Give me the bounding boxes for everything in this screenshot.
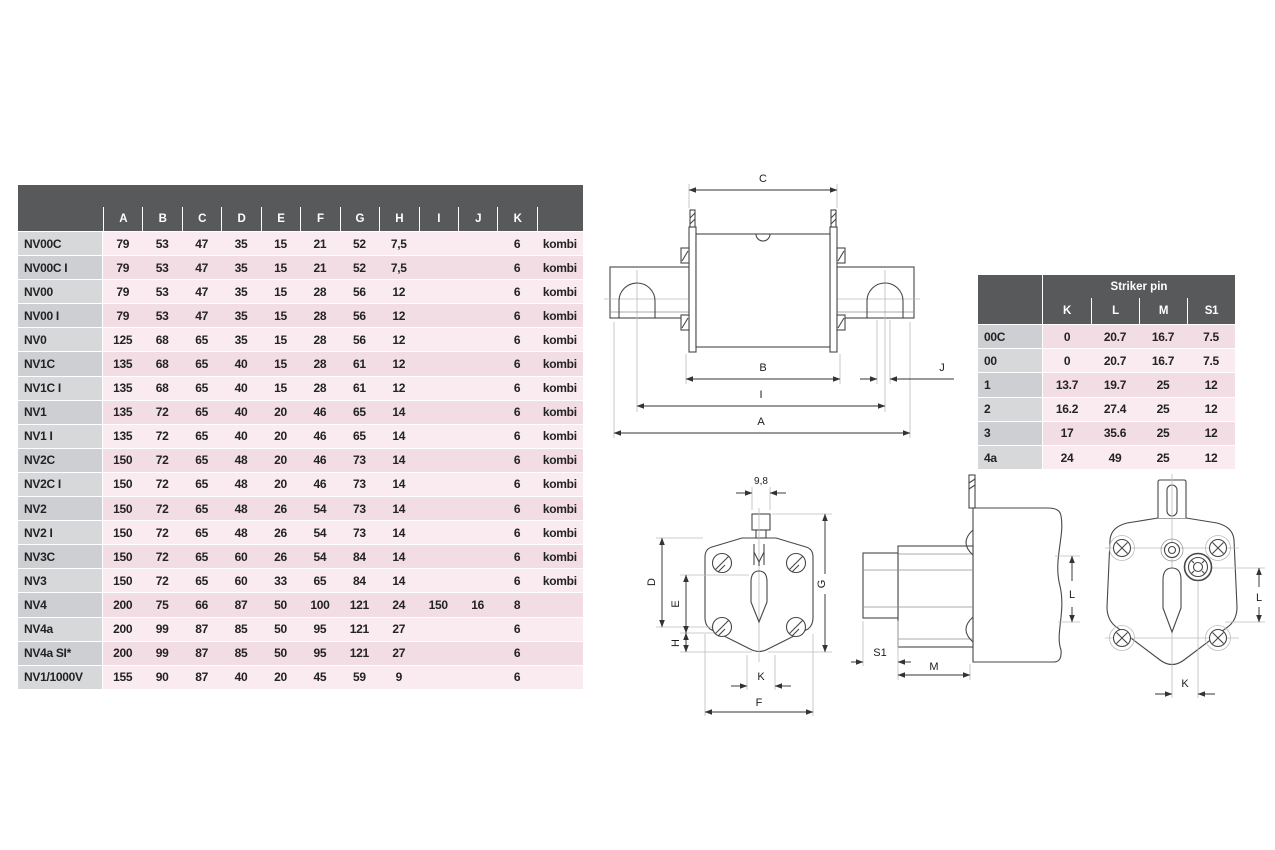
table-cell: 27 <box>379 642 418 665</box>
column-header: I <box>419 207 458 231</box>
table-cell: 9 <box>379 666 418 689</box>
table-cell: 6 <box>497 304 536 327</box>
table-cell: 95 <box>300 642 339 665</box>
table-cell: kombi <box>537 545 583 568</box>
row-label: NV00C <box>18 232 103 255</box>
table-cell <box>419 232 458 255</box>
dim-label-k: K <box>1181 678 1189 690</box>
dim-label-h: H <box>670 639 682 647</box>
table-row: NV2C150726548204673146kombi <box>18 448 583 472</box>
table-cell: 150 <box>103 473 142 496</box>
table-cell: 20.7 <box>1091 349 1139 372</box>
row-label: NV2 I <box>18 521 103 544</box>
table-cell <box>419 328 458 351</box>
table-cell <box>419 497 458 520</box>
table-cell: 99 <box>142 642 181 665</box>
fuse-dimensions-table: ABCDEFGHIJK NV00C795347351521527,56kombi… <box>18 185 583 689</box>
column-header: E <box>261 207 300 231</box>
table-body: 00C020.716.77.500020.716.77.5113.719.725… <box>978 324 1235 469</box>
dim-label-c: C <box>759 173 767 185</box>
table-cell: 12 <box>1187 398 1235 421</box>
table-body: NV00C795347351521527,56kombiNV00C I79534… <box>18 231 583 689</box>
table-cell: 35.6 <box>1091 422 1139 445</box>
table-cell: 27 <box>379 618 418 641</box>
fuse-end-view-drawing: 9,8 D E H G K F <box>648 462 844 722</box>
table-cell: 14 <box>379 425 418 448</box>
table-cell: 27.4 <box>1091 398 1139 421</box>
table-cell <box>458 545 497 568</box>
row-label: 1 <box>978 373 1043 396</box>
table-cell: 6 <box>497 521 536 544</box>
fuse-side-view-drawing: L S1 M <box>850 466 1086 686</box>
column-header: G <box>340 207 379 231</box>
datasheet-page: ABCDEFGHIJK NV00C795347351521527,56kombi… <box>0 0 1275 850</box>
table-cell: 28 <box>300 328 339 351</box>
row-label: NV1/1000V <box>18 666 103 689</box>
row-label: NV4 <box>18 593 103 616</box>
table-cell: 16 <box>458 593 497 616</box>
column-header: J <box>458 207 497 231</box>
row-label: NV1C I <box>18 377 103 400</box>
table-row: 00C020.716.77.5 <box>978 324 1235 348</box>
table-cell <box>419 449 458 472</box>
row-label: NV00C I <box>18 256 103 279</box>
table-cell: 84 <box>340 545 379 568</box>
table-cell: 48 <box>221 449 260 472</box>
table-cell: 14 <box>379 473 418 496</box>
table-cell: 6 <box>497 642 536 665</box>
table-cell: 7,5 <box>379 232 418 255</box>
table-cell: 54 <box>300 497 339 520</box>
table-cell: kombi <box>537 521 583 544</box>
table-cell: 12 <box>379 280 418 303</box>
table-cell: 45 <box>300 666 339 689</box>
table-cell: 6 <box>497 618 536 641</box>
table-cell: 15 <box>261 377 300 400</box>
table-cell: 135 <box>103 425 142 448</box>
table-cell: 75 <box>142 593 181 616</box>
table-cell: 73 <box>340 473 379 496</box>
table-cell: 52 <box>340 256 379 279</box>
table-cell: 49 <box>1091 446 1139 469</box>
table-cell: 61 <box>340 352 379 375</box>
row-label: NV1 I <box>18 425 103 448</box>
table-cell: 20.7 <box>1091 325 1139 348</box>
table-cell: kombi <box>537 280 583 303</box>
table-cell: 46 <box>300 449 339 472</box>
table-cell: 28 <box>300 352 339 375</box>
table-row: NV0079534735152856126kombi <box>18 279 583 303</box>
table-cell: 26 <box>261 497 300 520</box>
table-cell: 6 <box>497 569 536 592</box>
table-cell: 135 <box>103 401 142 424</box>
table-cell: 65 <box>182 521 221 544</box>
table-cell: 35 <box>221 304 260 327</box>
table-cell: 65 <box>182 425 221 448</box>
table-cell: 150 <box>103 497 142 520</box>
table-cell: 35 <box>221 232 260 255</box>
table-cell: 65 <box>182 569 221 592</box>
table-cell: 46 <box>300 473 339 496</box>
table-cell: 68 <box>142 377 181 400</box>
table-cell <box>458 569 497 592</box>
table-cell: 15 <box>261 304 300 327</box>
table-cell <box>419 256 458 279</box>
table-cell: 6 <box>497 352 536 375</box>
table-cell: 19.7 <box>1091 373 1139 396</box>
table-cell: 25 <box>1139 422 1187 445</box>
dim-label-s1: S1 <box>873 647 886 659</box>
table-cell <box>419 280 458 303</box>
table-cell: 87 <box>182 642 221 665</box>
table-row: NV00C795347351521527,56kombi <box>18 231 583 255</box>
table-cell: 40 <box>221 352 260 375</box>
table-cell: 21 <box>300 232 339 255</box>
table-cell: 7.5 <box>1187 349 1235 372</box>
table-cell: 14 <box>379 401 418 424</box>
table-cell: 200 <box>103 618 142 641</box>
table-cell: 6 <box>497 232 536 255</box>
table-cell: 65 <box>182 377 221 400</box>
column-header: H <box>379 207 418 231</box>
table-header: ABCDEFGHIJK <box>18 185 583 231</box>
header-corner <box>978 275 1043 324</box>
table-cell: 47 <box>182 256 221 279</box>
table-cell: 53 <box>142 304 181 327</box>
header-band <box>18 185 583 207</box>
column-header: B <box>142 207 181 231</box>
table-cell: 84 <box>340 569 379 592</box>
table-cell: 60 <box>221 569 260 592</box>
table-cell: kombi <box>537 328 583 351</box>
table-cell <box>419 521 458 544</box>
table-cell <box>537 642 583 665</box>
table-cell: 68 <box>142 328 181 351</box>
table-row: NV1C135686540152861126kombi <box>18 351 583 375</box>
table-cell: 87 <box>182 618 221 641</box>
table-cell: 65 <box>182 328 221 351</box>
table-cell <box>537 593 583 616</box>
table-cell: 72 <box>142 449 181 472</box>
table-cell: 35 <box>221 280 260 303</box>
table-cell: 12 <box>1187 422 1235 445</box>
table-row: NV1 I135726540204665146kombi <box>18 424 583 448</box>
table-cell: 28 <box>300 304 339 327</box>
table-cell: 121 <box>340 618 379 641</box>
table-cell <box>419 352 458 375</box>
table-cell: 14 <box>379 497 418 520</box>
table-cell: 65 <box>340 425 379 448</box>
table-cell: 135 <box>103 377 142 400</box>
table-row: 31735.62512 <box>978 421 1235 445</box>
table-cell <box>419 545 458 568</box>
table-cell: 66 <box>182 593 221 616</box>
table-cell: 0 <box>1043 349 1091 372</box>
table-cell: 46 <box>300 401 339 424</box>
table-cell: 68 <box>142 352 181 375</box>
dim-label-9-8: 9,8 <box>754 476 768 487</box>
table-cell: 20 <box>261 425 300 448</box>
table-cell <box>458 328 497 351</box>
table-cell: 87 <box>221 593 260 616</box>
table-cell: 6 <box>497 401 536 424</box>
table-cell <box>458 521 497 544</box>
table-cell: 6 <box>497 497 536 520</box>
table-cell: 61 <box>340 377 379 400</box>
column-header: L <box>1091 298 1139 324</box>
table-cell: 6 <box>497 425 536 448</box>
table-cell: 90 <box>142 666 181 689</box>
table-cell <box>458 256 497 279</box>
row-label: NV0 <box>18 328 103 351</box>
table-cell: 200 <box>103 642 142 665</box>
table-cell: 15 <box>261 328 300 351</box>
table-cell <box>419 618 458 641</box>
table-cell <box>419 569 458 592</box>
table-cell: 150 <box>419 593 458 616</box>
table-cell: 35 <box>221 328 260 351</box>
table-cell: 40 <box>221 666 260 689</box>
table-row: 113.719.72512 <box>978 372 1235 396</box>
column-header: M <box>1139 298 1187 324</box>
table-cell: 20 <box>261 666 300 689</box>
table-cell: 6 <box>497 473 536 496</box>
table-cell: 20 <box>261 401 300 424</box>
dim-label-g: G <box>816 580 828 589</box>
table-cell: kombi <box>537 377 583 400</box>
row-label: 00C <box>978 325 1043 348</box>
table-cell <box>458 304 497 327</box>
table-cell: 50 <box>261 618 300 641</box>
table-cell: kombi <box>537 569 583 592</box>
table-cell: 150 <box>103 521 142 544</box>
body-shapes <box>863 475 1062 662</box>
table-cell: 20 <box>261 449 300 472</box>
table-cell: 73 <box>340 449 379 472</box>
column-header: D <box>221 207 260 231</box>
table-cell: 150 <box>103 569 142 592</box>
table-row: NV0125686535152856126kombi <box>18 327 583 351</box>
table-cell: 79 <box>103 280 142 303</box>
table-cell: 53 <box>142 256 181 279</box>
table-cell: 85 <box>221 618 260 641</box>
table-cell: 65 <box>182 545 221 568</box>
table-cell <box>419 401 458 424</box>
table-cell: 150 <box>103 449 142 472</box>
column-header: A <box>103 207 142 231</box>
table-cell: 56 <box>340 328 379 351</box>
table-cell: 72 <box>142 545 181 568</box>
table-cell <box>458 642 497 665</box>
table-cell: 6 <box>497 256 536 279</box>
table-cell: 60 <box>221 545 260 568</box>
table-cell: 46 <box>300 425 339 448</box>
table-row: NV42007566875010012124150168 <box>18 592 583 616</box>
table-cell <box>419 425 458 448</box>
table-cell <box>419 473 458 496</box>
table-cell: 12 <box>1187 373 1235 396</box>
row-label: NV3C <box>18 545 103 568</box>
row-label: NV00 <box>18 280 103 303</box>
row-label: NV2C I <box>18 473 103 496</box>
row-label: NV1C <box>18 352 103 375</box>
table-cell <box>458 449 497 472</box>
table-cell: 8 <box>497 593 536 616</box>
table-cell: 28 <box>300 377 339 400</box>
row-label: NV2 <box>18 497 103 520</box>
table-cell: 17 <box>1043 422 1091 445</box>
table-header: Striker pin KLMS1 <box>978 275 1235 324</box>
table-cell: kombi <box>537 256 583 279</box>
row-label: NV00 I <box>18 304 103 327</box>
dim-label-d: D <box>646 578 658 586</box>
table-row: NV4a2009987855095121276 <box>18 617 583 641</box>
dim-label-k: K <box>757 671 765 683</box>
table-cell: 15 <box>261 256 300 279</box>
dim-label-j: J <box>939 362 945 374</box>
table-cell <box>537 666 583 689</box>
table-row: NV3C150726560265484146kombi <box>18 544 583 568</box>
header-corner <box>18 207 103 231</box>
table-row: NV2C I150726548204673146kombi <box>18 472 583 496</box>
column-header <box>537 207 583 231</box>
table-cell: 53 <box>142 280 181 303</box>
table-cell: 87 <box>182 666 221 689</box>
table-cell: 99 <box>142 618 181 641</box>
table-cell: 16.2 <box>1043 398 1091 421</box>
table-cell: 65 <box>300 569 339 592</box>
column-header: K <box>497 207 536 231</box>
table-cell <box>458 377 497 400</box>
table-cell: 121 <box>340 642 379 665</box>
dim-label-e: E <box>670 600 682 607</box>
table-cell: 40 <box>221 377 260 400</box>
table-cell: 53 <box>142 232 181 255</box>
table-row: NV00 I79534735152856126kombi <box>18 303 583 327</box>
table-row: NV1135726540204665146kombi <box>18 400 583 424</box>
dim-label-l: L <box>1069 589 1075 601</box>
table-row: NV1C I135686540152861126kombi <box>18 376 583 400</box>
table-cell: 72 <box>142 521 181 544</box>
table-cell: 47 <box>182 304 221 327</box>
table-cell: 56 <box>340 280 379 303</box>
table-cell: 35 <box>221 256 260 279</box>
table-cell: 121 <box>340 593 379 616</box>
striker-pin-table: Striker pin KLMS1 00C020.716.77.500020.7… <box>978 275 1235 469</box>
striker-pin-title: Striker pin <box>1043 275 1235 298</box>
table-cell: 72 <box>142 425 181 448</box>
table-cell: 25 <box>1139 446 1187 469</box>
table-cell: kombi <box>537 232 583 255</box>
table-row: 00020.716.77.5 <box>978 348 1235 372</box>
table-cell: 54 <box>300 521 339 544</box>
dim-label-i: I <box>759 389 762 401</box>
table-cell: 40 <box>221 401 260 424</box>
table-cell <box>419 666 458 689</box>
table-cell: 6 <box>497 449 536 472</box>
table-cell: 48 <box>221 497 260 520</box>
table-cell: 14 <box>379 521 418 544</box>
table-cell: 72 <box>142 497 181 520</box>
table-cell: 21 <box>300 256 339 279</box>
table-cell: 72 <box>142 473 181 496</box>
row-label: 2 <box>978 398 1043 421</box>
table-cell: 15 <box>261 352 300 375</box>
row-label: NV3 <box>18 569 103 592</box>
table-cell: 28 <box>300 280 339 303</box>
row-label: NV2C <box>18 449 103 472</box>
dim-label-m: M <box>929 661 938 673</box>
row-label: NV4a SI* <box>18 642 103 665</box>
table-cell: 14 <box>379 449 418 472</box>
table-cell: 40 <box>221 425 260 448</box>
table-cell: 14 <box>379 569 418 592</box>
column-header: C <box>182 207 221 231</box>
table-cell: 47 <box>182 232 221 255</box>
column-header: F <box>300 207 339 231</box>
dim-label-a: A <box>757 416 765 428</box>
table-cell <box>458 497 497 520</box>
table-cell: 6 <box>497 666 536 689</box>
table-cell <box>458 280 497 303</box>
table-cell: 79 <box>103 304 142 327</box>
table-cell: 50 <box>261 593 300 616</box>
table-cell: 7,5 <box>379 256 418 279</box>
table-cell: 15 <box>261 232 300 255</box>
table-cell <box>537 618 583 641</box>
table-cell: 150 <box>103 545 142 568</box>
table-cell: 12 <box>379 304 418 327</box>
table-cell: kombi <box>537 449 583 472</box>
table-cell: 6 <box>497 280 536 303</box>
table-cell: 85 <box>221 642 260 665</box>
table-cell: 6 <box>497 377 536 400</box>
table-cell: 50 <box>261 642 300 665</box>
table-cell: 100 <box>300 593 339 616</box>
table-cell: 25 <box>1139 373 1187 396</box>
table-cell: 65 <box>182 473 221 496</box>
table-cell: 79 <box>103 256 142 279</box>
table-cell <box>419 642 458 665</box>
table-cell: 65 <box>182 497 221 520</box>
table-cell: 12 <box>379 377 418 400</box>
table-cell: 24 <box>379 593 418 616</box>
column-header: K <box>1043 298 1091 324</box>
table-cell: 25 <box>1139 398 1187 421</box>
dim-label-b: B <box>759 362 766 374</box>
table-cell: 200 <box>103 593 142 616</box>
table-cell: 65 <box>340 401 379 424</box>
row-label: 3 <box>978 422 1043 445</box>
table-cell: 73 <box>340 497 379 520</box>
table-cell: 6 <box>497 545 536 568</box>
table-cell: 65 <box>182 401 221 424</box>
table-cell: 16.7 <box>1139 325 1187 348</box>
table-cell: 7.5 <box>1187 325 1235 348</box>
table-cell: 20 <box>261 473 300 496</box>
table-cell: 79 <box>103 232 142 255</box>
row-label: NV1 <box>18 401 103 424</box>
table-cell: 125 <box>103 328 142 351</box>
table-cell: 65 <box>182 449 221 472</box>
table-cell <box>458 401 497 424</box>
table-cell <box>458 352 497 375</box>
table-cell: 47 <box>182 280 221 303</box>
table-row: NV4a SI*2009987855095121276 <box>18 641 583 665</box>
table-cell: kombi <box>537 425 583 448</box>
table-row: NV3150726560336584146kombi <box>18 568 583 592</box>
table-cell <box>458 473 497 496</box>
